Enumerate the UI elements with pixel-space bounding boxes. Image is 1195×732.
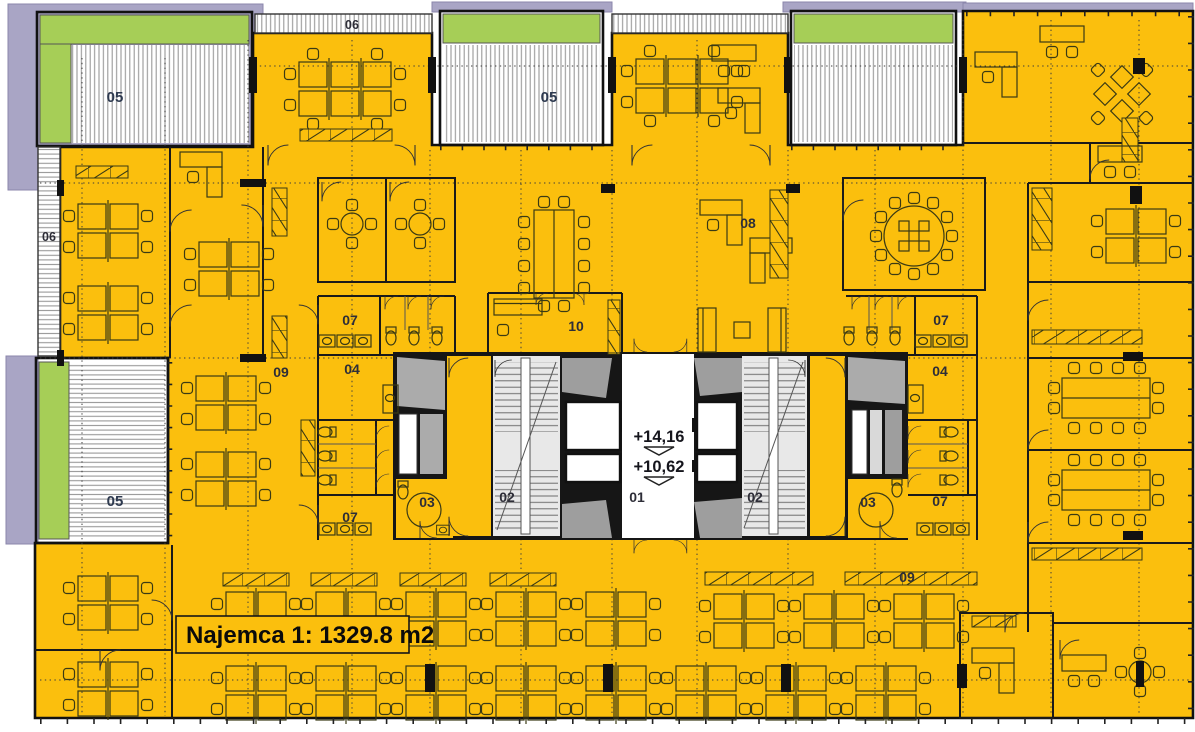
planter <box>39 362 69 539</box>
tenant-area-label: Najemca 1: 1329.8 m2 <box>176 616 434 653</box>
room-label-01: 01 <box>629 489 645 505</box>
cabinet-run <box>1122 118 1138 162</box>
planter <box>40 15 249 44</box>
cabinet-run <box>301 420 315 476</box>
elevator-east-1 <box>697 402 737 450</box>
room-label-03-w: 03 <box>419 494 435 510</box>
planter <box>40 44 71 143</box>
elevation-upper: +14,16 <box>634 428 685 446</box>
balcony-west <box>38 147 60 356</box>
terrace-deck <box>443 45 600 142</box>
balcony-north-1 <box>255 14 432 33</box>
room-label-08: 08 <box>740 215 756 231</box>
cabinet-run <box>1032 330 1142 344</box>
room-label-05-nc: 05 <box>541 89 558 106</box>
parapet-west <box>6 356 38 544</box>
stairwell-west-room <box>493 356 560 536</box>
room-label-05-nw: 05 <box>107 89 124 106</box>
room-label-03-e: 03 <box>860 494 876 510</box>
room-label-10: 10 <box>568 318 584 334</box>
elevator-east-2 <box>697 454 737 482</box>
terrace-deck <box>71 45 249 143</box>
cabinet-run <box>972 616 1016 627</box>
cabinet-run <box>1032 188 1052 250</box>
room-label-09-w: 09 <box>273 364 289 380</box>
cabinet-run <box>608 300 620 354</box>
core-corridor-east <box>810 356 845 536</box>
planter <box>443 14 600 43</box>
tenant-label-text: Najemca 1: 1329.8 m2 <box>186 622 434 649</box>
elevation-lower: +10,62 <box>634 458 685 476</box>
room-label-05-w: 05 <box>107 493 124 510</box>
elevator-lobby-room <box>622 354 694 538</box>
cabinet-run <box>272 316 287 358</box>
terrace-northwest <box>37 12 252 146</box>
stairwell-east-room <box>742 356 807 536</box>
cabinet-run <box>770 190 788 278</box>
building-core <box>393 339 908 553</box>
room-label-07-wu: 07 <box>342 312 358 328</box>
cabinet-run <box>223 573 289 586</box>
room-label-07-el: 07 <box>932 493 948 509</box>
terrace-west <box>36 358 168 543</box>
shaft-west <box>397 357 445 410</box>
room-label-02-w: 02 <box>499 489 515 505</box>
terrace-deck <box>794 45 953 142</box>
elevator-west-1 <box>566 402 620 450</box>
terrace-north-east <box>791 11 956 145</box>
room-label-06-n: 06 <box>345 18 359 32</box>
cabinet-run <box>400 573 466 586</box>
room-label-07-eu: 07 <box>933 312 949 328</box>
cabinet-run <box>1032 548 1142 560</box>
room-label-02-e: 02 <box>747 489 763 505</box>
cabinet-run <box>300 129 392 141</box>
room-label-09-s: 09 <box>899 569 915 585</box>
elevator-west-2 <box>566 454 620 482</box>
wc-accessible-east-room <box>848 479 908 538</box>
room-label-06-w: 06 <box>42 230 56 244</box>
cabinet-run <box>490 573 556 586</box>
cabinet-run <box>311 573 377 586</box>
floor-plan-svg: 05 06 05 06 08 09 07 04 10 07 04 05 07 0… <box>0 0 1195 732</box>
cabinet-run <box>272 188 287 236</box>
floor-plan: 05 06 05 06 08 09 07 04 10 07 04 05 07 0… <box>0 0 1195 732</box>
room-label-04-w: 04 <box>344 361 360 377</box>
cabinet-run <box>705 572 813 585</box>
room-label-04-e: 04 <box>932 363 948 379</box>
terrace-deck <box>69 362 165 539</box>
planter <box>794 14 953 43</box>
room-label-07-wl: 07 <box>342 509 358 525</box>
core-corridor-west <box>447 356 491 536</box>
terrace-north-center <box>440 11 603 145</box>
shaft-east <box>848 357 905 404</box>
cabinet-run <box>76 166 128 178</box>
balcony-north-2 <box>612 14 788 33</box>
